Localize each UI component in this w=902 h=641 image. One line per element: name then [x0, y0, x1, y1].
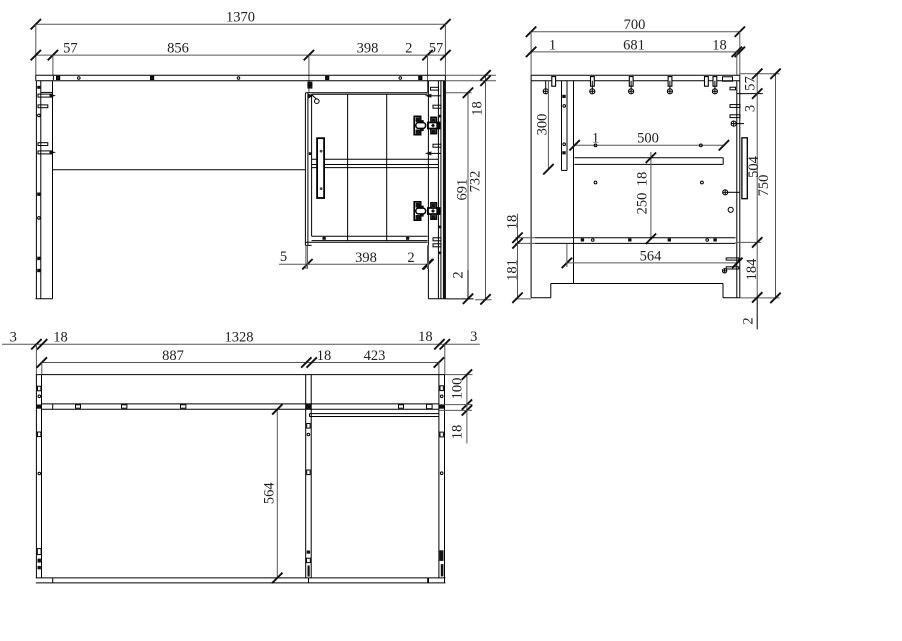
svg-text:3: 3 [10, 329, 17, 345]
svg-text:3: 3 [743, 105, 759, 112]
svg-text:57: 57 [63, 40, 78, 56]
svg-text:57: 57 [429, 40, 444, 56]
svg-text:184: 184 [744, 258, 760, 281]
svg-text:681: 681 [623, 37, 645, 53]
svg-text:18: 18 [635, 172, 651, 187]
svg-text:2: 2 [741, 317, 757, 324]
svg-text:500: 500 [637, 130, 659, 146]
svg-text:18: 18 [450, 425, 466, 440]
svg-text:564: 564 [640, 248, 663, 264]
svg-text:3: 3 [470, 329, 477, 345]
svg-text:398: 398 [357, 40, 379, 56]
svg-text:856: 856 [167, 40, 189, 56]
svg-text:700: 700 [624, 17, 646, 33]
svg-text:2: 2 [405, 40, 412, 56]
svg-text:18: 18 [418, 329, 433, 345]
svg-text:1370: 1370 [226, 10, 255, 26]
svg-text:691: 691 [455, 179, 471, 201]
svg-text:750: 750 [756, 175, 772, 197]
svg-text:18: 18 [504, 215, 520, 230]
svg-text:5: 5 [280, 249, 287, 265]
svg-text:100: 100 [450, 378, 466, 400]
svg-text:504: 504 [746, 155, 762, 178]
svg-text:181: 181 [504, 259, 520, 281]
svg-text:1328: 1328 [225, 329, 254, 345]
svg-text:18: 18 [470, 101, 486, 116]
svg-text:250: 250 [635, 193, 651, 215]
svg-text:57: 57 [743, 76, 759, 91]
svg-text:564: 564 [262, 482, 278, 505]
svg-text:2: 2 [407, 250, 414, 266]
svg-text:398: 398 [355, 250, 377, 266]
svg-text:2: 2 [451, 271, 467, 278]
svg-text:18: 18 [712, 37, 727, 53]
svg-text:887: 887 [162, 348, 184, 364]
svg-text:18: 18 [53, 329, 68, 345]
svg-text:423: 423 [364, 348, 386, 364]
svg-text:300: 300 [535, 114, 551, 136]
svg-text:18: 18 [317, 348, 332, 364]
svg-text:1: 1 [549, 37, 556, 53]
